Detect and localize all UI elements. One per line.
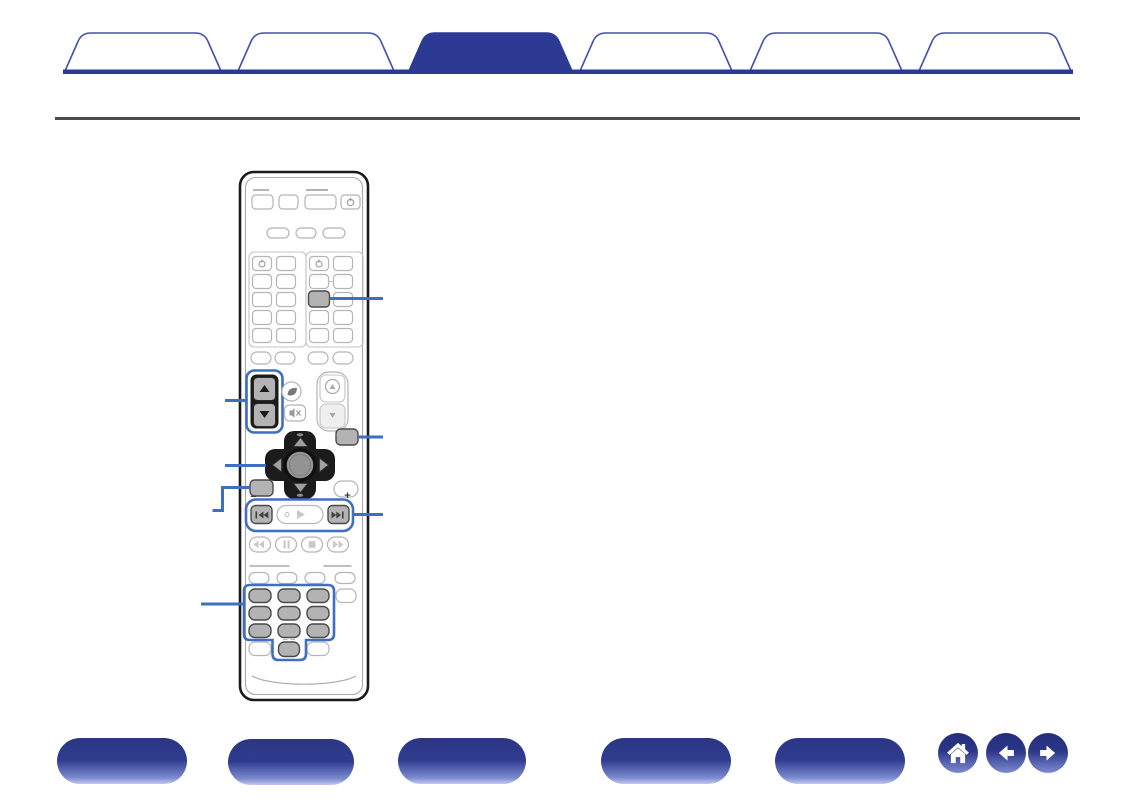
remote-button [252,195,273,209]
pause-icon [284,541,286,549]
mode-button-row [267,228,345,238]
number-button [307,589,329,603]
remote-button [334,257,353,271]
remote-button [277,329,296,343]
remote-button [251,352,271,364]
forward-button[interactable] [1028,733,1068,773]
remote-button [305,195,336,209]
remote-button [253,329,272,343]
remote-button [277,311,296,325]
number-button [278,607,300,621]
mute-button [285,405,306,421]
number-button-zero [279,642,300,657]
remote-button [334,311,353,325]
minus-label: − [250,491,256,503]
remote-button [310,311,329,325]
remote-button [275,352,295,364]
home-button[interactable] [938,733,978,773]
remote-button [305,573,325,584]
pad-top-mark [297,433,303,436]
remote-button [249,573,269,584]
source-grid-button-highlighted [309,291,330,307]
remote-button [253,257,272,271]
remote-button [308,352,328,364]
remote-button [279,195,298,209]
number-button [278,624,300,638]
pause-button [276,537,297,552]
remote-button [336,589,356,603]
remote-button [296,228,316,238]
forward-icon [1033,738,1063,768]
footer-nav-button-3[interactable] [398,738,526,784]
remote-button [277,293,296,307]
number-button [249,624,271,638]
number-button [307,624,329,638]
footer-nav-button-4[interactable] [601,738,731,784]
back-icon [991,738,1021,768]
remote-button [310,257,329,271]
number-button [278,589,300,603]
power-button [341,195,360,209]
remote-button [323,228,345,238]
remote-button [335,573,355,584]
channel-updown-rocker [247,371,283,433]
manual-page: − + [0,0,1135,800]
volume-rocker [317,372,348,431]
remote-button [307,642,329,656]
setup-button [336,429,358,445]
remote-button [334,275,353,289]
number-button [307,607,329,621]
remote-button [277,275,296,289]
remote-button [334,329,353,343]
remote-button [277,573,297,584]
number-button [249,589,271,603]
remote-button [253,293,272,307]
remote-button [310,275,329,289]
remote-button [249,642,271,656]
back-button[interactable] [986,733,1026,773]
pad-bottom-mark [297,494,303,497]
number-button [249,607,271,621]
remote-illustration: − + [0,0,1135,800]
remote-button [277,257,296,271]
remote-button [333,352,353,364]
remote-button [310,329,329,343]
footer-nav-button-5[interactable] [775,738,905,784]
plus-label: + [344,490,350,502]
home-icon [943,738,973,768]
remote-button [253,311,272,325]
footer-nav-button-1[interactable] [57,738,187,784]
remote-button [267,228,289,238]
remote-button [253,275,272,289]
footer-nav-button-2[interactable] [228,739,354,785]
stop-icon [309,541,316,548]
